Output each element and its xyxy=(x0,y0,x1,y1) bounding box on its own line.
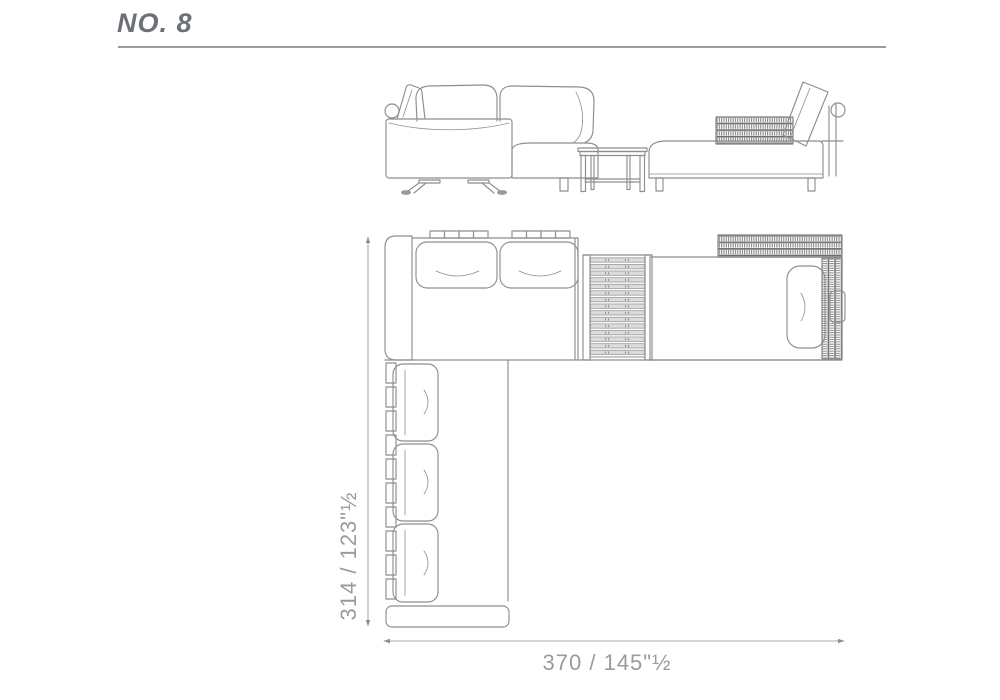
back-cushion xyxy=(393,524,438,602)
plan-daybed xyxy=(650,235,845,360)
width-dimension-line xyxy=(384,639,845,643)
metal-leg xyxy=(468,180,507,195)
metal-leg xyxy=(401,180,440,195)
dimension-width-label: 370 / 145"½ xyxy=(543,650,672,676)
elevation-daybed xyxy=(649,82,845,191)
dimension-depth-label: 314 / 123"½ xyxy=(336,492,362,621)
back-cushion xyxy=(416,242,497,288)
plan-slatted-table xyxy=(583,255,652,360)
daybed-seat xyxy=(649,141,823,178)
plan-chaise-leg xyxy=(386,360,509,627)
elevation-sofa xyxy=(385,85,598,195)
leaning-back-cushion xyxy=(397,85,425,119)
daybed-leg xyxy=(656,178,663,191)
back-cushion xyxy=(393,444,438,521)
plan-view xyxy=(385,231,845,627)
technical-drawing xyxy=(0,0,1000,700)
elevation-view xyxy=(385,82,845,195)
bolster-cushion xyxy=(385,104,399,118)
back-cushion xyxy=(393,364,438,441)
sofa-body xyxy=(386,119,512,178)
left-armrest xyxy=(385,236,412,360)
rattan-back-panel xyxy=(716,117,793,144)
back-cushion xyxy=(500,242,578,288)
back-cushion xyxy=(787,266,825,348)
back-cushion xyxy=(416,85,497,121)
end-armrest xyxy=(386,606,509,627)
depth-dimension-line xyxy=(366,237,370,627)
woven-back-band xyxy=(718,235,842,257)
elevation-side-table xyxy=(578,148,647,192)
seat-leg xyxy=(560,178,568,191)
bolster-cushion xyxy=(831,103,845,117)
daybed-leg xyxy=(808,178,815,191)
